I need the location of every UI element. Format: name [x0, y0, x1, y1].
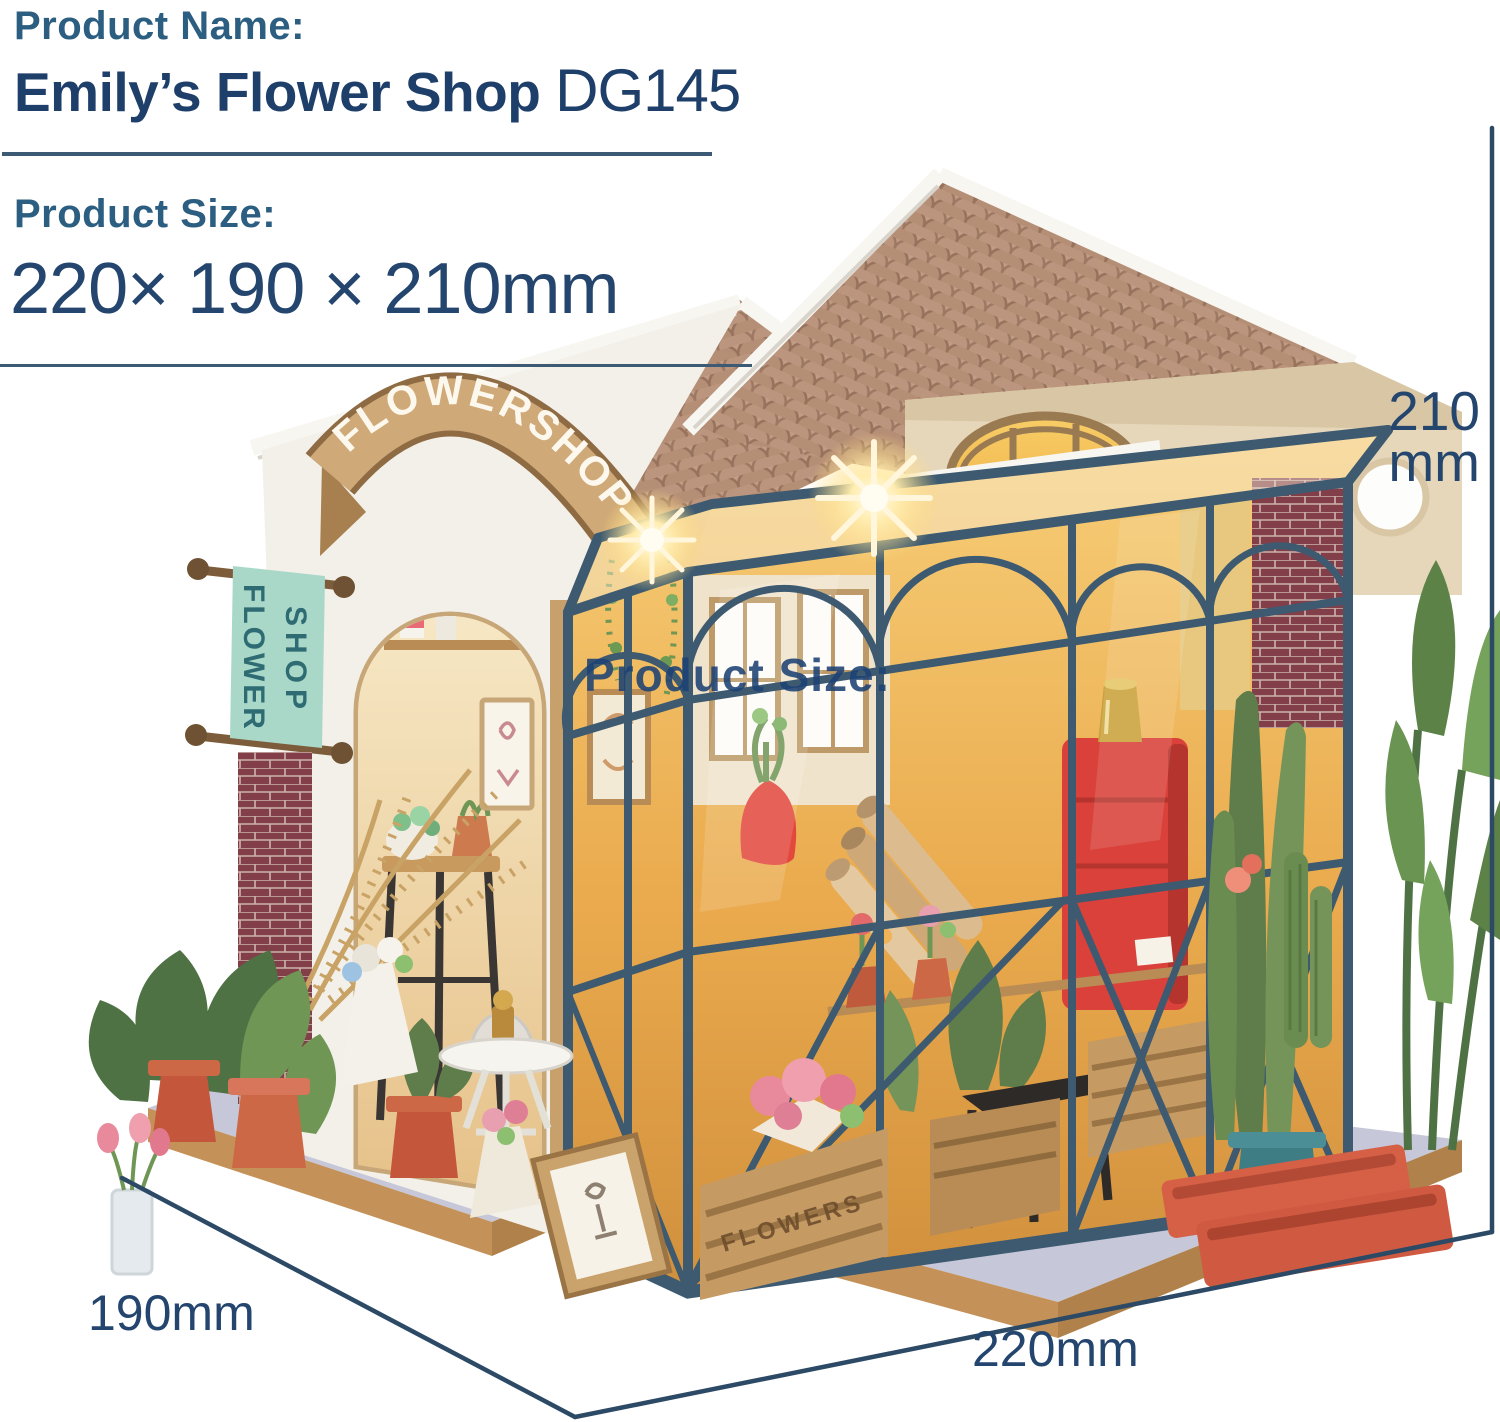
watermark-text: Product Size:: [584, 648, 891, 702]
product-size-label: Product Size:: [14, 192, 276, 237]
separator-line-bottom: [0, 364, 752, 367]
hanging-banner-text-1: FLOWER: [237, 584, 270, 732]
height-unit: mm: [1376, 437, 1480, 488]
tulip-vase: [97, 1113, 170, 1274]
string-light-right: [808, 432, 940, 564]
height-value: 210: [1376, 386, 1480, 437]
string-light-left: [600, 488, 704, 592]
product-code: DG145: [555, 57, 740, 124]
height-dimension-label: 210 mm: [1376, 386, 1480, 488]
depth-dimension-label: 190mm: [88, 1284, 255, 1342]
product-infographic: FLOWERSHOP: [0, 0, 1500, 1422]
hanging-banner-text-2: SHOP: [279, 606, 312, 715]
separator-line-top: [2, 152, 712, 156]
product-size-value: 220× 190 × 210mm: [10, 248, 618, 330]
product-title-text: Emily’s Flower Shop: [14, 61, 540, 123]
width-dimension-label: 220mm: [972, 1320, 1139, 1378]
strelitzia-plant: [1385, 560, 1500, 1150]
product-name-label: Product Name:: [14, 4, 305, 49]
product-title: Emily’s Flower Shop DG145: [14, 56, 740, 125]
